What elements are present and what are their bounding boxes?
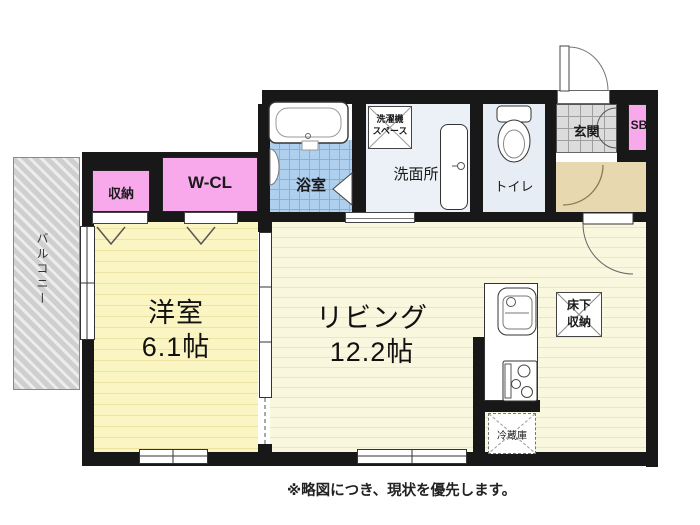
refrigerator-label: 冷蔵庫 [488, 427, 536, 442]
floor-plan: バルコニー 収納 W-CL 浴室 洗濯機 スペース 洗面所 トイレ 玄関 SB … [0, 0, 700, 525]
toilet-label: トイレ [483, 176, 545, 195]
living-size: 12.2帖 [272, 336, 472, 370]
living-name: リビング [272, 302, 472, 336]
entrance-door-icon [560, 46, 608, 91]
laundry-space-label: 洗濯機 スペース [368, 114, 412, 137]
closet-door-chevrons [97, 227, 215, 244]
western-room-label: 洋室 6.1帖 [94, 297, 258, 365]
washroom-label: 洗面所 [366, 163, 466, 184]
bathroom-label: 浴室 [270, 174, 352, 195]
stove-icon [503, 361, 537, 401]
entrance-label: 玄関 [556, 121, 617, 140]
living-label: リビング 12.2帖 [272, 302, 472, 370]
wcl-label: W-CL [162, 173, 258, 193]
underfloor-label-line2: 収納 [556, 314, 602, 331]
toilet-icon [497, 106, 531, 162]
western-room-size: 6.1帖 [94, 331, 258, 365]
balcony-label: バルコニー [34, 232, 51, 307]
underfloor-label-line1: 床下 [556, 297, 602, 314]
shoe-box-label: SB [626, 118, 652, 132]
underfloor-storage-label: 床下 収納 [556, 297, 602, 331]
bathtub-icon [269, 102, 348, 150]
living-door-icon [583, 213, 633, 274]
hallway-door-icon [563, 165, 603, 205]
storage-label: 収納 [92, 183, 150, 202]
western-room-name: 洋室 [94, 297, 258, 331]
kitchen-sink-icon [498, 288, 536, 335]
laundry-label-line2: スペース [368, 126, 412, 138]
fixtures-layer [0, 0, 700, 525]
laundry-label-line1: 洗濯機 [368, 114, 412, 126]
partition-detail [259, 287, 272, 444]
disclaimer-note: ※略図につき、現状を優先します。 [287, 479, 516, 500]
